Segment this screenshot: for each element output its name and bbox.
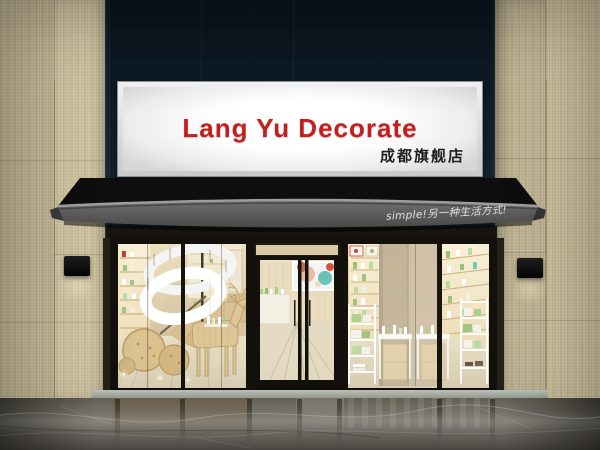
sign-title: Lang Yu Decorate xyxy=(123,113,477,144)
storefront-photo: Lang Yu Decorate 成都旗舰店 simple!另一种生活方式! xyxy=(0,0,600,450)
storefront xyxy=(110,238,497,398)
marble-veins xyxy=(0,398,600,450)
door-handle xyxy=(294,300,296,326)
wall-lamp-left xyxy=(64,256,90,276)
sign-subtitle: 成都旗舰店 xyxy=(380,145,465,166)
signboard: Lang Yu Decorate 成都旗舰店 xyxy=(117,81,483,177)
glass-reflections xyxy=(118,244,490,390)
tile-seam xyxy=(54,254,108,255)
wall-lamp-right xyxy=(517,258,543,278)
transom-panel xyxy=(255,244,339,256)
signboard-lightbox: Lang Yu Decorate 成都旗舰店 xyxy=(123,87,477,171)
frame-shadow xyxy=(496,238,504,398)
door-handle xyxy=(309,300,311,326)
